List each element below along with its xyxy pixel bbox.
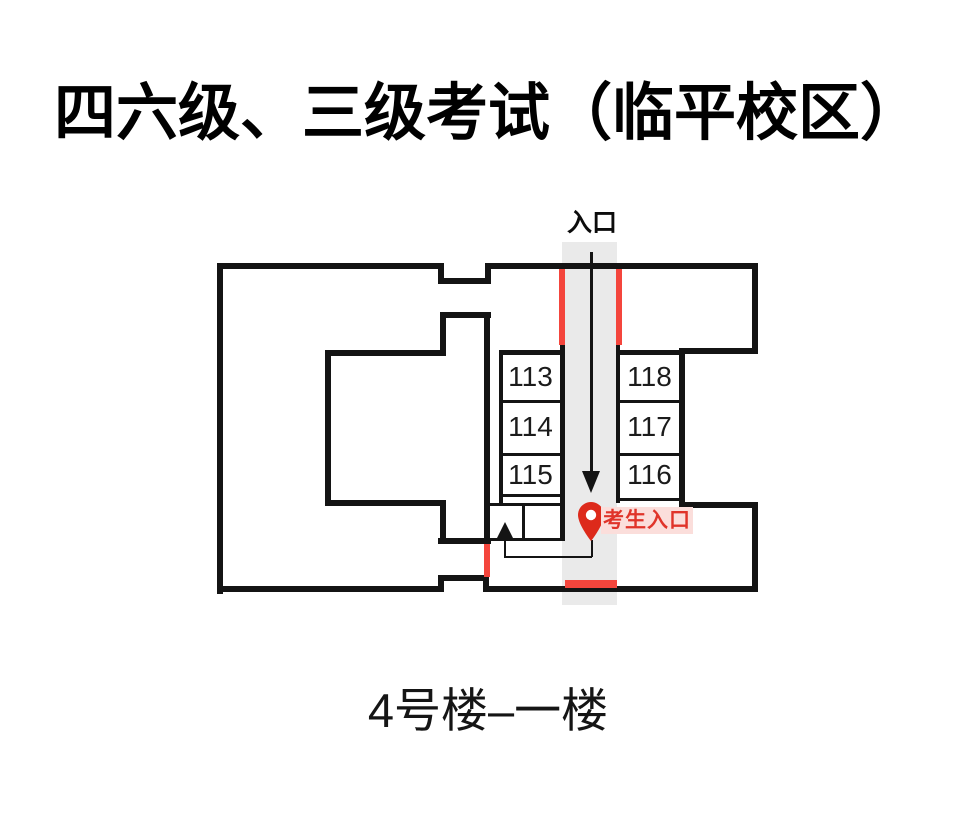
wall-top-left (217, 263, 444, 269)
red-wall-corridor-right (616, 269, 622, 345)
room-116: 116 (619, 460, 680, 490)
room-divider (499, 494, 565, 497)
room-divider (616, 453, 683, 456)
room-divider (616, 350, 683, 355)
wall-left-outer (217, 263, 223, 594)
courtyard-wall-top (325, 350, 446, 356)
courtyard-wall-left (325, 350, 331, 506)
down-arrow-icon (590, 252, 593, 472)
room-divider (617, 498, 683, 501)
wall-top-notch (438, 278, 491, 284)
wall-right-step-top (682, 348, 758, 354)
room-118: 118 (619, 362, 680, 392)
entrance-label: 入口 (542, 203, 642, 239)
wall-bottom-right (483, 586, 758, 592)
courtyard-wall-bottom (325, 500, 446, 506)
room-115: 115 (500, 460, 561, 490)
room-divider (499, 453, 565, 456)
exam-location-map: 四六级、三级考试（临平校区） 入口 (0, 0, 976, 815)
wall-bottom-notch (438, 575, 489, 581)
red-wall-lower-left (484, 544, 490, 577)
wall-bottom-left (217, 586, 444, 592)
up-arrowhead-icon (496, 522, 514, 540)
red-wall-corridor-left (559, 269, 565, 345)
stair-box-divider (522, 503, 525, 541)
up-arrow-icon (504, 538, 507, 558)
wall-segment (440, 312, 446, 356)
stair-box-top (490, 503, 565, 506)
red-wall-bottom-exit (565, 580, 617, 588)
wall-right-bottom (752, 502, 758, 592)
examinee-entrance-label: 考生入口 (601, 507, 693, 534)
room-divider (616, 400, 683, 403)
room-114: 114 (500, 412, 561, 442)
wall-center-vertical (484, 312, 490, 544)
room-divider (499, 350, 565, 355)
room-117: 117 (619, 412, 680, 442)
room-113: 113 (500, 362, 561, 392)
building-floor-label: 4号楼–一楼 (0, 672, 976, 741)
route-line-vertical (591, 540, 593, 557)
wall-right-step-bottom (682, 502, 758, 508)
down-arrowhead-icon (582, 471, 600, 493)
wall-right-top (752, 263, 758, 354)
page-title: 四六级、三级考试（临平校区） (0, 80, 976, 148)
room-divider (499, 400, 565, 403)
route-line-horizontal (504, 556, 592, 558)
